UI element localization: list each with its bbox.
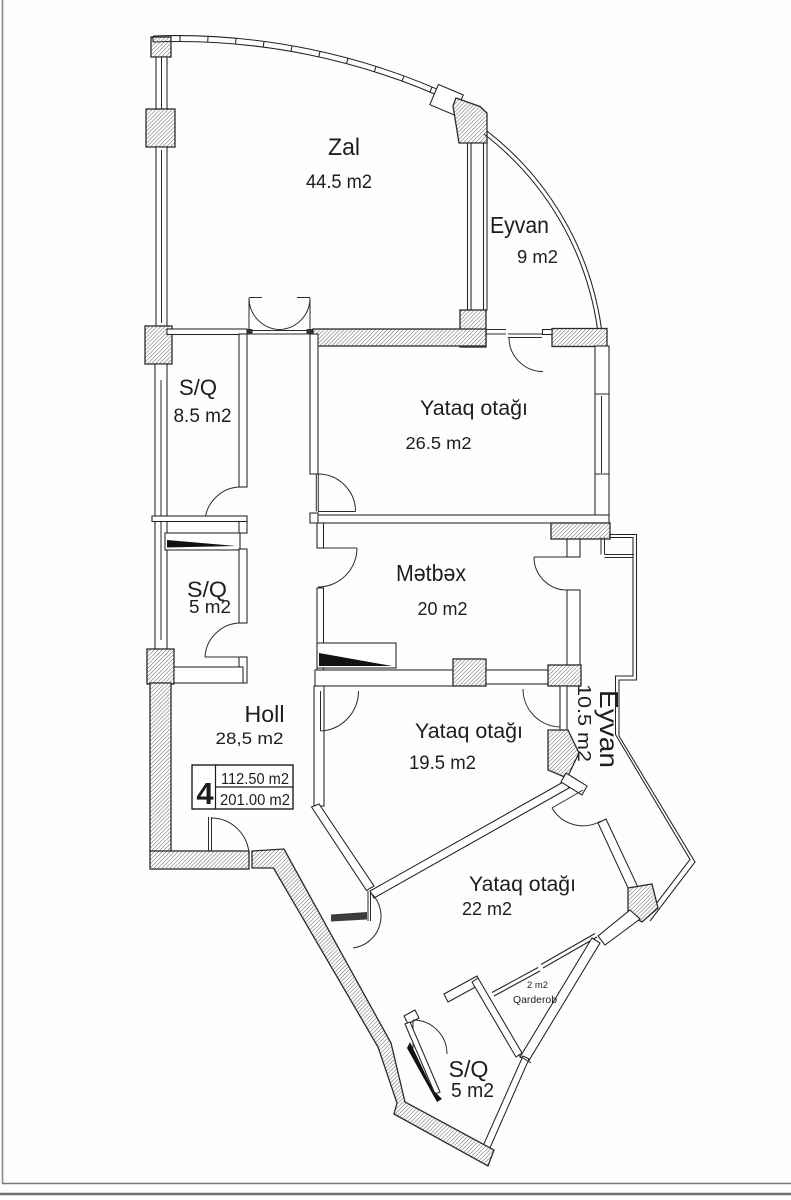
svg-text:8.5 m2: 8.5 m2 [174, 406, 232, 427]
svg-text:Qarderob: Qarderob [513, 994, 557, 1006]
svg-text:112.50 m2: 112.50 m2 [221, 771, 289, 788]
svg-text:Zal: Zal [328, 134, 360, 161]
svg-text:9 m2: 9 m2 [517, 247, 558, 267]
svg-text:Eyvan: Eyvan [594, 690, 624, 768]
svg-text:26.5 m2: 26.5 m2 [406, 433, 472, 453]
svg-text:2 m2: 2 m2 [527, 980, 548, 991]
svg-text:20 m2: 20 m2 [418, 599, 468, 619]
svg-text:201.00 m2: 201.00 m2 [220, 792, 290, 809]
svg-text:Yataq otağı: Yataq otağı [420, 396, 528, 420]
svg-text:19.5 m2: 19.5 m2 [409, 753, 476, 774]
svg-text:Holl: Holl [245, 701, 285, 727]
svg-text:44.5 m2: 44.5 m2 [306, 171, 372, 193]
svg-text:S/Q: S/Q [449, 1056, 489, 1082]
svg-text:Mətbəx: Mətbəx [396, 560, 466, 586]
svg-text:Eyvan: Eyvan [490, 212, 549, 238]
svg-text:5 m2: 5 m2 [451, 1080, 494, 1102]
svg-text:Yataq otağı: Yataq otağı [469, 872, 576, 896]
svg-text:Yataq otağı: Yataq otağı [415, 719, 523, 743]
svg-text:5 m2: 5 m2 [189, 597, 231, 617]
svg-text:4: 4 [196, 776, 214, 811]
svg-text:S/Q: S/Q [179, 375, 217, 400]
svg-text:22 m2: 22 m2 [462, 899, 512, 919]
svg-text:28,5 m2: 28,5 m2 [216, 729, 284, 748]
